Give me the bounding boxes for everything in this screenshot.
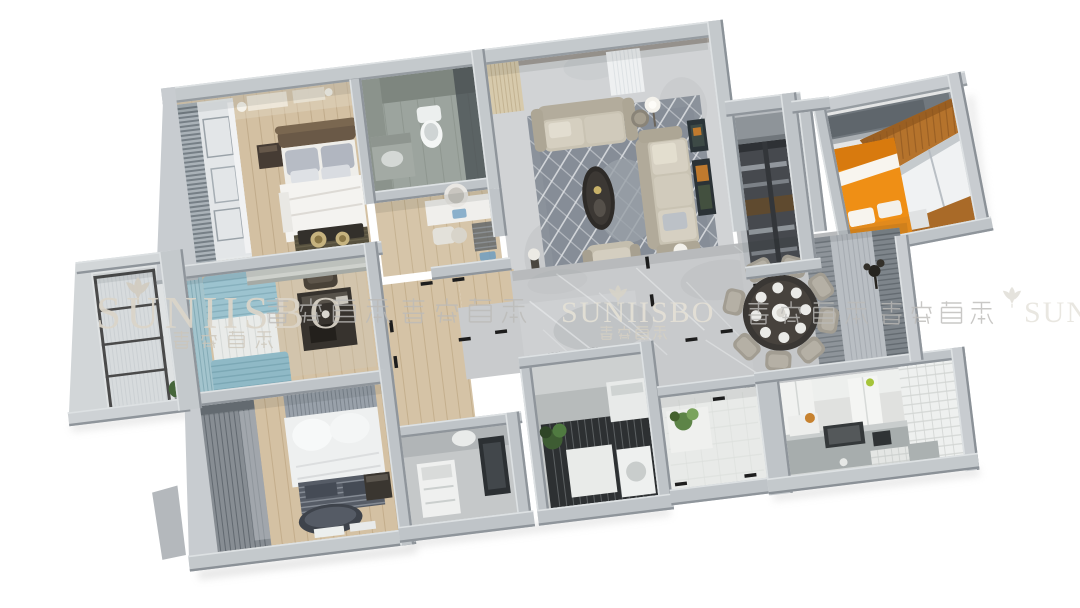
svg-text:SUNIISBO: SUNIISBO [1024, 296, 1080, 329]
svg-text:SUNIISBO: SUNIISBO [561, 296, 715, 329]
svg-text:SUNIISBO: SUNIISBO [96, 288, 348, 338]
